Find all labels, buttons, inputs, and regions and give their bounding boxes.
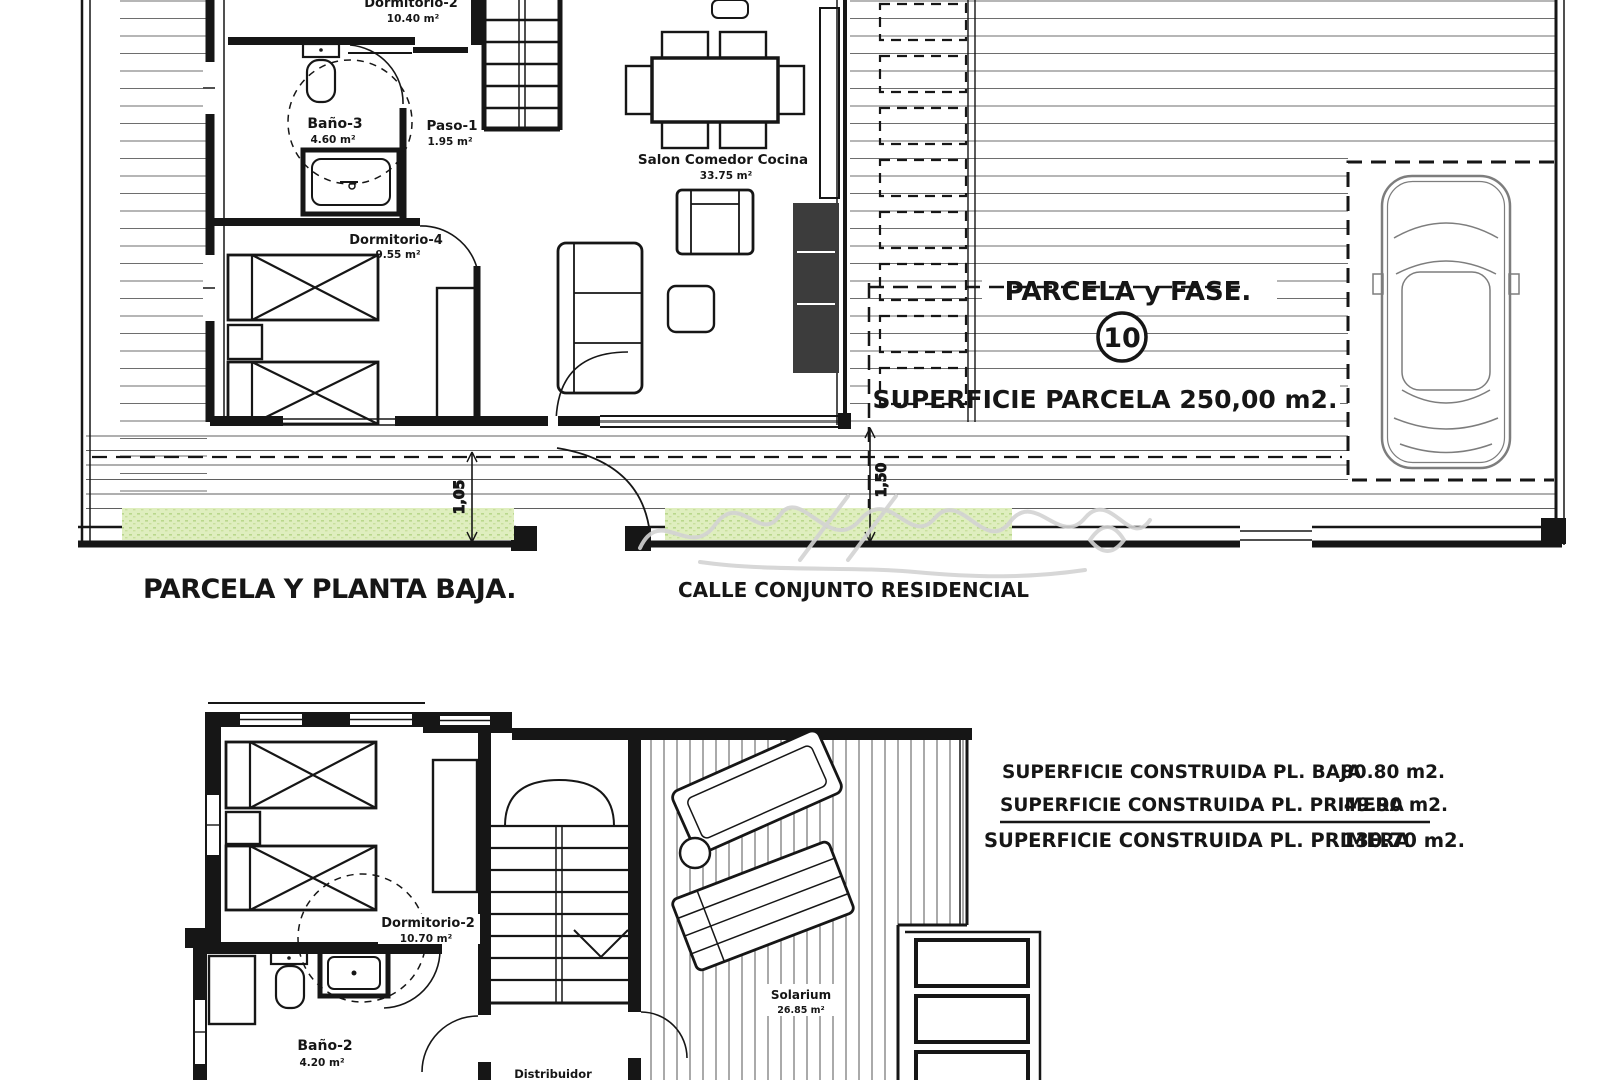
dining-table-icon bbox=[652, 58, 778, 122]
floorplan-sheet: 1,05 1,50 bbox=[0, 0, 1620, 1080]
room-name: Baño-3 bbox=[307, 116, 362, 132]
built-surface-table: SUPERFICIE CONSTRUIDA PL. BAJA 80.80 m2.… bbox=[984, 762, 1465, 852]
ground-floor-caption: PARCELA Y PLANTA BAJA. bbox=[143, 574, 516, 605]
floorplan-drawing: 1,05 1,50 bbox=[0, 0, 1620, 1080]
staircase bbox=[484, 0, 560, 129]
room-area: 10.40 m² bbox=[387, 13, 440, 25]
table-row-label: SUPERFICIE CONSTRUIDA PL. BAJA bbox=[1002, 762, 1362, 783]
bed-icon bbox=[226, 742, 376, 808]
room-area: 4.60 m² bbox=[310, 134, 356, 146]
living-room-furniture bbox=[558, 0, 839, 393]
planter-icon bbox=[916, 940, 1028, 986]
dimension-label: 1,50 bbox=[874, 462, 890, 497]
toilet-icon bbox=[307, 60, 335, 102]
nightstand-icon bbox=[228, 325, 262, 359]
room-name: Dormitorio-2 bbox=[381, 916, 475, 931]
dimension-label: 1,05 bbox=[452, 480, 468, 515]
parcel-title: PARCELA y FASE. bbox=[1005, 277, 1252, 307]
table-row-value: 80.80 m2. bbox=[1341, 762, 1445, 783]
planter-icon bbox=[916, 996, 1028, 1042]
wardrobe-icon bbox=[433, 760, 477, 892]
kitchen-counter-icon bbox=[793, 203, 839, 373]
room-name: Dormitorio-4 bbox=[349, 233, 443, 248]
parking-bay bbox=[1348, 158, 1556, 482]
side-table-icon bbox=[680, 838, 710, 868]
sofa-icon bbox=[558, 243, 642, 393]
room-name: Salon Comedor Cocina bbox=[638, 152, 808, 168]
street-caption: CALLE CONJUNTO RESIDENCIAL bbox=[678, 578, 1029, 602]
bed-icon bbox=[226, 846, 376, 910]
room-name: Paso-1 bbox=[427, 118, 478, 134]
wardrobe-icon bbox=[437, 288, 477, 422]
parcel-number: 10 bbox=[1103, 323, 1141, 354]
coffee-table-icon bbox=[668, 286, 714, 332]
room-area: 26.85 m² bbox=[777, 1005, 824, 1016]
ground-floor-plan: 1,05 1,50 bbox=[78, 0, 1566, 605]
bedroom4-furniture bbox=[228, 255, 477, 424]
room-name: Dormitorio-2 bbox=[364, 0, 458, 11]
room-area: 4.20 m² bbox=[299, 1057, 345, 1069]
table-row-value: 130.70 m2. bbox=[1342, 829, 1465, 852]
room-area: 9.55 m² bbox=[375, 249, 421, 261]
parcel-surface: SUPERFICIE PARCELA 250,00 m2. bbox=[873, 385, 1338, 414]
shower-icon bbox=[209, 956, 255, 1024]
nightstand-icon bbox=[226, 812, 260, 844]
bed-icon bbox=[228, 255, 378, 320]
sink-icon bbox=[712, 0, 748, 18]
kitchen-cabinet-icon bbox=[820, 8, 839, 198]
first-floor-plan: Dormitorio-2 10.70 m² Baño-2 4.20 m² Dis… bbox=[185, 703, 1465, 1080]
armchair-icon bbox=[677, 190, 753, 254]
room-name: Solarium bbox=[771, 988, 831, 1002]
room-name: Baño-2 bbox=[297, 1038, 352, 1054]
table-row-value: 49.90 m2. bbox=[1344, 795, 1448, 816]
bedroom2-furniture bbox=[226, 742, 477, 910]
bed-icon bbox=[228, 362, 378, 424]
room-area: 33.75 m² bbox=[700, 170, 753, 182]
room-name: Distribuidor bbox=[514, 1067, 592, 1080]
planter-icon bbox=[916, 1052, 1028, 1080]
toilet-icon bbox=[276, 966, 304, 1008]
room-area: 10.70 m² bbox=[400, 933, 453, 945]
room-area: 1.95 m² bbox=[427, 136, 473, 148]
staircase-upper bbox=[491, 780, 628, 1003]
